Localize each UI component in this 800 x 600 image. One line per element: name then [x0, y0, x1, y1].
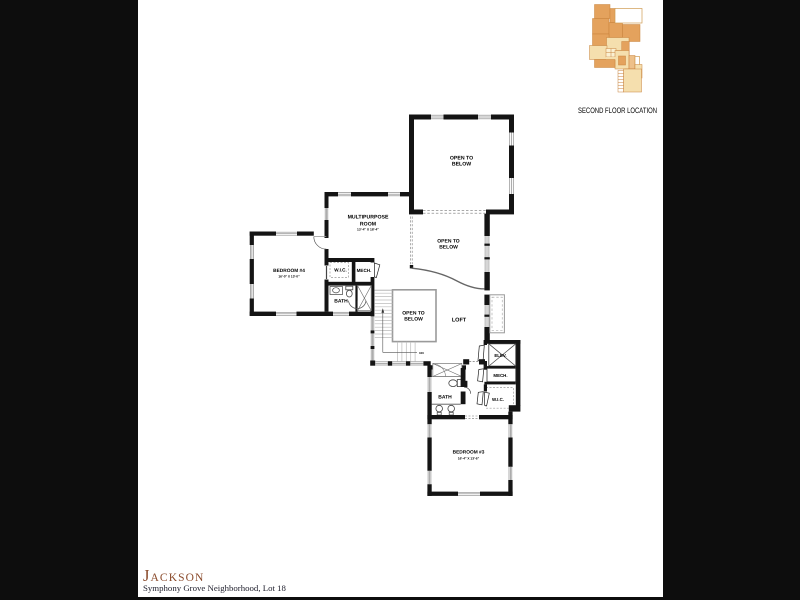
svg-text:BELOW: BELOW	[452, 162, 471, 168]
svg-text:MECH.: MECH.	[357, 268, 372, 273]
svg-text:LOFT: LOFT	[452, 318, 467, 324]
svg-text:BELOW: BELOW	[404, 317, 423, 323]
svg-text:16'-4" X 13'-6": 16'-4" X 13'-6"	[458, 457, 480, 461]
svg-text:DN: DN	[419, 351, 423, 355]
svg-text:BELOW: BELOW	[439, 245, 458, 251]
svg-text:BATH: BATH	[334, 299, 348, 305]
svg-text:W.I.C.: W.I.C.	[492, 397, 504, 402]
svg-text:W.I.C.: W.I.C.	[334, 268, 347, 273]
svg-text:16'-0" X 13'-0": 16'-0" X 13'-0"	[278, 275, 300, 279]
svg-text:BATH: BATH	[438, 395, 452, 401]
svg-text:BEDROOM #4: BEDROOM #4	[273, 268, 305, 274]
svg-text:MULTIPURPOSE: MULTIPURPOSE	[348, 215, 389, 221]
svg-text:13'-4" X 18'-4": 13'-4" X 18'-4"	[357, 228, 379, 232]
svg-text:MECH.: MECH.	[493, 373, 507, 378]
svg-text:BEDROOM #3: BEDROOM #3	[453, 450, 485, 456]
svg-text:ELEV.: ELEV.	[494, 353, 506, 358]
svg-text:SECOND FLOOR LOCATION: SECOND FLOOR LOCATION	[578, 106, 657, 115]
